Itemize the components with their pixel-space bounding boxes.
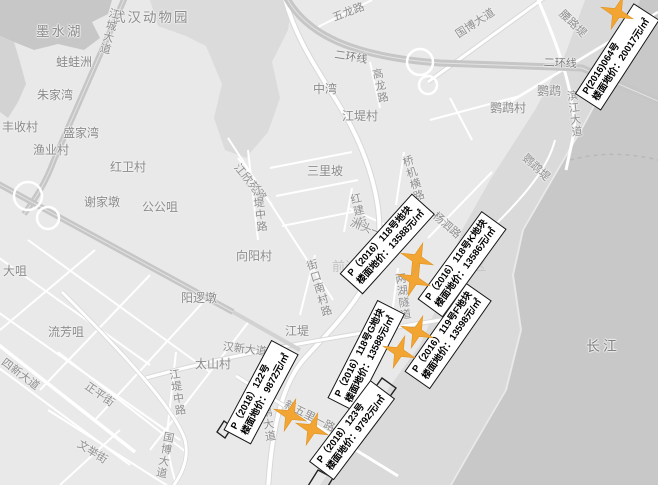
place-label: 阳逻墩 [181,289,217,306]
star-marker-icon[interactable] [394,260,434,300]
place-label: 大咀 [3,262,27,279]
star-marker-icon[interactable] [597,0,637,33]
river-label: 长江 [586,336,620,356]
place-label: 江堤 [285,322,309,339]
place-label: 红卫村 [110,158,146,175]
place-label: 三里坡 [307,162,343,179]
place-label: 丰收村 [2,118,38,135]
place-label: 盛家湾 [63,124,99,141]
place-label: 谢家墩 [84,193,120,210]
place-label: 渔业村 [33,141,69,158]
place-label: 中湾 [313,80,337,97]
map-viewport[interactable]: 墨水湖 武汉动物园 蛙蛙洲 朱家湾 丰收村 盛家湾 渔业村 红卫村 谢家墩 公公… [0,0,658,485]
road-label: 二环线 [543,54,577,71]
place-label: 太山村 [195,355,231,372]
star-marker-icon[interactable] [379,332,419,372]
place-label: 公公咀 [142,198,178,215]
place-label: 流芳咀 [48,323,84,340]
place-label: 江堤村 [342,107,378,124]
lake-shore [0,36,26,118]
place-label: 蛙蛙洲 [56,53,92,70]
place-label: 向阳村 [236,247,272,264]
place-label: 墨水湖 [36,20,83,40]
star-marker-icon[interactable] [292,409,332,449]
place-label: 鹦鹉 [537,82,561,99]
place-label: 武汉动物园 [112,6,190,26]
place-label: 鹦鹉村 [490,99,526,116]
place-label: 朱家湾 [37,86,73,103]
